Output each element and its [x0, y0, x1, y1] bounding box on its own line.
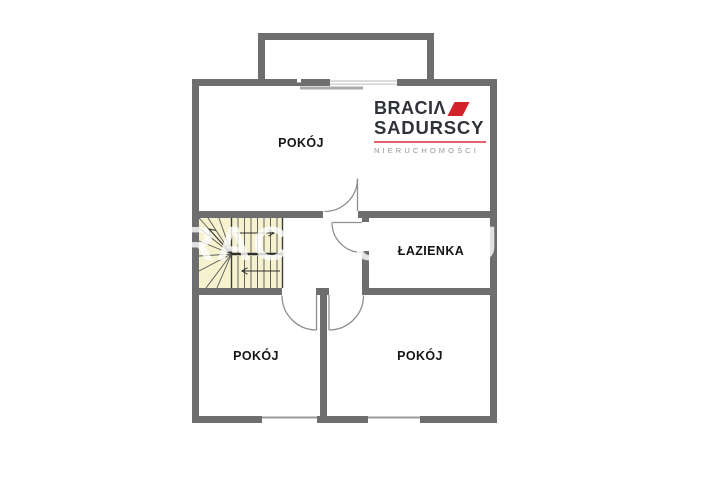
bedroom-divider-wall [320, 295, 327, 416]
brand-divider [374, 141, 486, 143]
balcony-walls [258, 33, 434, 79]
outer-wall-bottom [192, 416, 497, 423]
door-bottom-right-room [329, 295, 364, 330]
brand-logo: BRACI Λ SADURSCY NIERUCHOMOŚCI [374, 99, 488, 155]
brand-line3: NIERUCHOMOŚCI [374, 146, 488, 155]
door-top-room [325, 179, 358, 212]
interior-wall-lower [199, 288, 490, 295]
brand-line1: BRACI Λ [374, 99, 488, 117]
room-label-top: POKÓJ [278, 136, 324, 150]
brand-stylized-a: Λ [434, 99, 447, 117]
room-label-bottom-left: POKÓJ [233, 349, 279, 363]
brand-red-mark-icon [447, 102, 469, 116]
radiator [300, 87, 363, 90]
top-window [330, 81, 397, 84]
room-label-bathroom: ŁAZIENKA [398, 244, 464, 258]
room-label-bottom-right: POKÓJ [397, 349, 443, 363]
brand-name-prefix: BRACI [374, 99, 434, 117]
brand-line2: SADURSCY [374, 119, 488, 138]
outer-wall-top [192, 79, 490, 86]
door-bottom-left-room [282, 295, 317, 330]
watermark-text: BRACIA SADURSCY [143, 217, 641, 272]
floor-plan-page: BRACIA SADURSCY POKÓJ ŁAZIENKA POKÓJ POK… [0, 0, 710, 481]
